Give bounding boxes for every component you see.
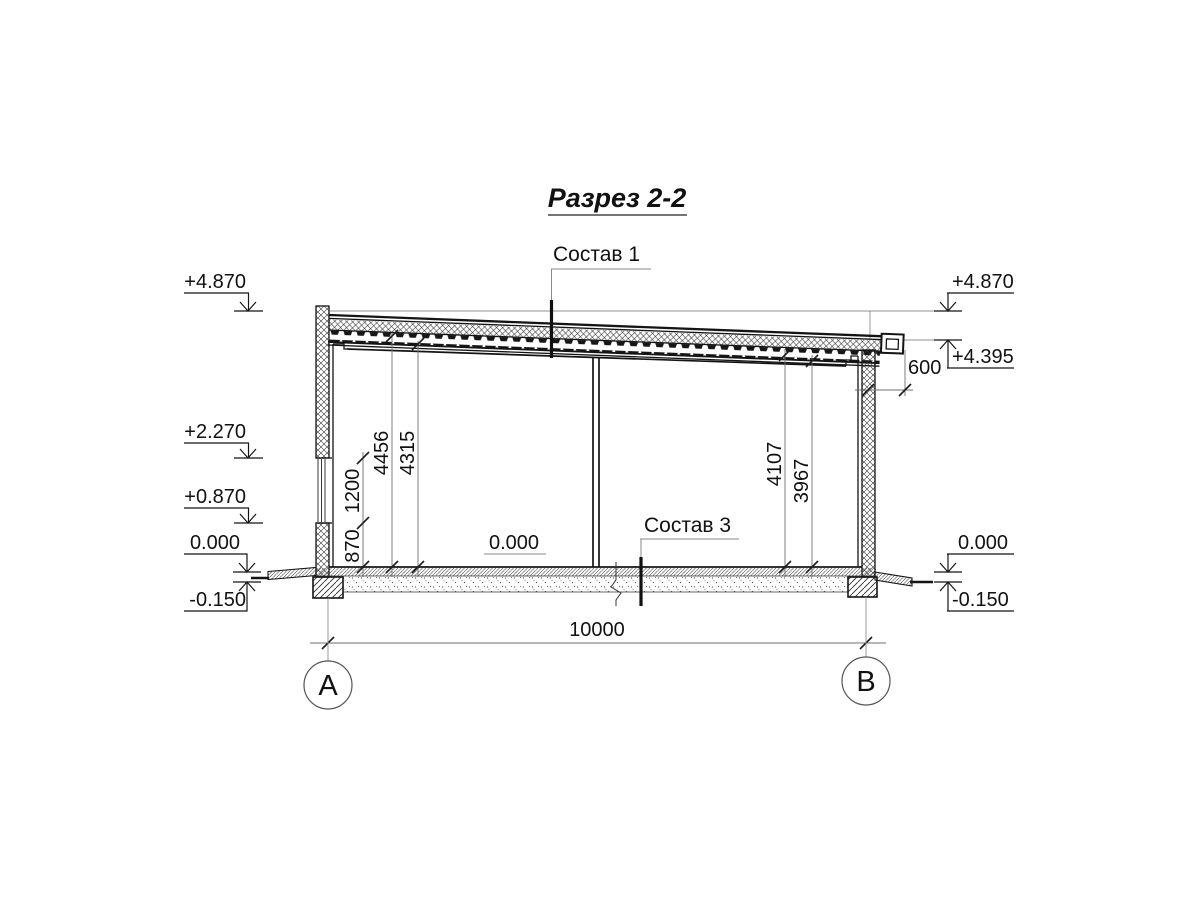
roof-composition-label: Состав 1	[553, 243, 640, 266]
level-left-roof: +4.870	[184, 271, 263, 311]
axis-a-label: А	[318, 670, 338, 702]
title-block: Разрез 2-2	[548, 183, 687, 215]
dim-left-height-deck-label: 4456	[371, 431, 393, 476]
interior-floor-level-label: 0.000	[489, 532, 539, 554]
right-foundation	[848, 577, 877, 597]
level-left-floor-label: 0.000	[190, 532, 240, 554]
level-right-roof-label: +4.870	[952, 271, 1014, 293]
dim-right-height-deck: 4107	[764, 349, 791, 577]
callout-interior-floor-level: 0.000	[484, 532, 546, 554]
dim-left-height-beam-label: 4315	[397, 431, 419, 476]
section-drawing: Разрез 2-2	[0, 0, 1200, 900]
level-marks-right: +4.870 +4.395 0.000 -0.150	[934, 271, 1014, 611]
level-left-window-sill: +0.870	[184, 486, 263, 523]
left-wall-upper	[316, 306, 329, 458]
axis-a: А	[304, 598, 352, 709]
dim-window-chain: 870 1200	[342, 452, 369, 577]
dim-sill-height-label: 870	[342, 529, 364, 562]
dim-right-height-deck-label: 4107	[764, 442, 786, 487]
floor-slab	[316, 562, 876, 606]
level-left-window-head-label: +2.270	[184, 421, 246, 443]
axis-b: В	[842, 597, 890, 705]
floor-bedding-dots	[343, 576, 848, 592]
interior-column	[593, 358, 599, 567]
axes: А В	[304, 597, 890, 709]
section-drawing-sheet: Разрез 2-2	[0, 0, 1200, 900]
level-right-eave: +4.395	[934, 340, 1014, 368]
axis-b-label: В	[856, 666, 875, 698]
vertical-dimensions: 870 1200 4456 4315 4107 3967	[342, 330, 818, 577]
left-apron	[268, 568, 316, 580]
level-right-floor-label: 0.000	[958, 532, 1008, 554]
left-wall	[316, 306, 333, 577]
level-right-floor: 0.000	[934, 532, 1014, 572]
dim-left-height-beam: 4315	[397, 338, 424, 577]
dim-span-label: 10000	[569, 619, 625, 641]
floor-composition-label: Состав 3	[644, 514, 731, 537]
level-left-roof-label: +4.870	[184, 271, 246, 293]
level-right-ground: -0.150	[934, 582, 1014, 611]
dim-eave-overhang-label: 600	[908, 357, 941, 379]
level-right-roof: +4.870	[934, 271, 1014, 311]
level-marks-left: +4.870 +2.270 +0.870 0.000	[184, 271, 263, 611]
right-apron	[875, 572, 912, 586]
right-wall	[858, 350, 875, 577]
level-left-window-head: +2.270	[184, 421, 263, 458]
dim-right-height-beam: 3967	[791, 355, 818, 577]
drawing-title: Разрез 2-2	[548, 183, 687, 213]
window-opening	[316, 458, 332, 523]
level-left-ground-label: -0.150	[189, 589, 246, 611]
dim-span: 10000	[310, 619, 886, 649]
level-left-floor: 0.000	[184, 532, 261, 572]
level-right-eave-label: +4.395	[952, 346, 1014, 368]
dim-window-height-label: 1200	[342, 469, 364, 514]
left-foundation	[313, 577, 343, 598]
level-left-window-sill-label: +0.870	[184, 486, 246, 508]
dim-right-height-beam-label: 3967	[791, 459, 813, 504]
floor-screed-hatch	[316, 568, 876, 576]
level-left-ground: -0.150	[184, 582, 261, 611]
level-right-ground-label: -0.150	[952, 589, 1009, 611]
dim-left-height-deck: 4456	[371, 330, 398, 577]
eave-fascia-gutter	[886, 339, 898, 349]
